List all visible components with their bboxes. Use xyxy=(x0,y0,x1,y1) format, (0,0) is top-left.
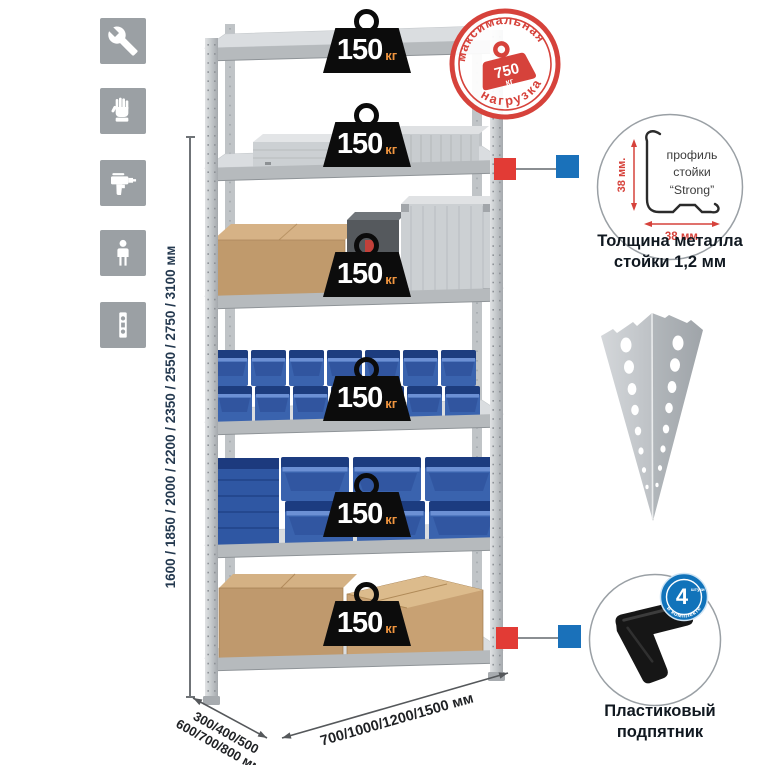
profile-dim-vertical-label: 38 мм. xyxy=(616,158,628,193)
gloves-icon xyxy=(100,88,146,134)
profile-label: профиль стойки “Strong” xyxy=(667,148,718,197)
callout-line xyxy=(514,168,558,170)
kit-badge-small-text: штуки xyxy=(691,587,705,592)
svg-text:профиль: профиль xyxy=(667,148,718,162)
post-profile-icon xyxy=(100,302,146,348)
profile-caption: Толщина металла стойки 1,2 мм xyxy=(580,231,760,274)
angle-post-image xyxy=(595,303,725,531)
weight-body: 150 кг xyxy=(323,492,411,537)
height-dimension-label: 1600 / 1850 / 2000 / 2200 / 2350 / 2550 … xyxy=(163,167,183,667)
weight-body: 150 кг xyxy=(323,28,411,73)
max-load-stamp: максимальная нагрузка 750 кг xyxy=(440,0,570,130)
weight-body: 150 кг xyxy=(323,376,411,421)
weight-body: 150 кг xyxy=(323,252,411,297)
person-icon xyxy=(100,230,146,276)
load-unit: кг xyxy=(385,48,397,63)
kit-quantity-badge: 4 штуки в комплекте xyxy=(659,572,709,622)
weight-body: 150 кг xyxy=(323,122,411,167)
load-value: 150 xyxy=(337,34,382,67)
svg-text:“Strong”: “Strong” xyxy=(670,183,714,197)
foot-caption: Пластиковый подпятник xyxy=(578,701,742,744)
kit-badge-number: 4 xyxy=(676,584,689,609)
drill-icon xyxy=(100,160,146,206)
callout-marker-blue xyxy=(558,625,581,648)
svg-text:стойки: стойки xyxy=(673,165,711,179)
height-dimension-line xyxy=(189,137,191,697)
wrench-icon xyxy=(100,18,146,64)
callout-marker-red xyxy=(494,158,516,180)
weight-body: 150 кг xyxy=(323,601,411,646)
width-dimension-line xyxy=(272,662,517,747)
product-infographic: 1600 / 1850 / 2000 / 2200 / 2350 / 2550 … xyxy=(0,0,765,765)
callout-line xyxy=(516,637,560,639)
callout-marker-blue xyxy=(556,155,579,178)
callout-marker-red xyxy=(496,627,518,649)
